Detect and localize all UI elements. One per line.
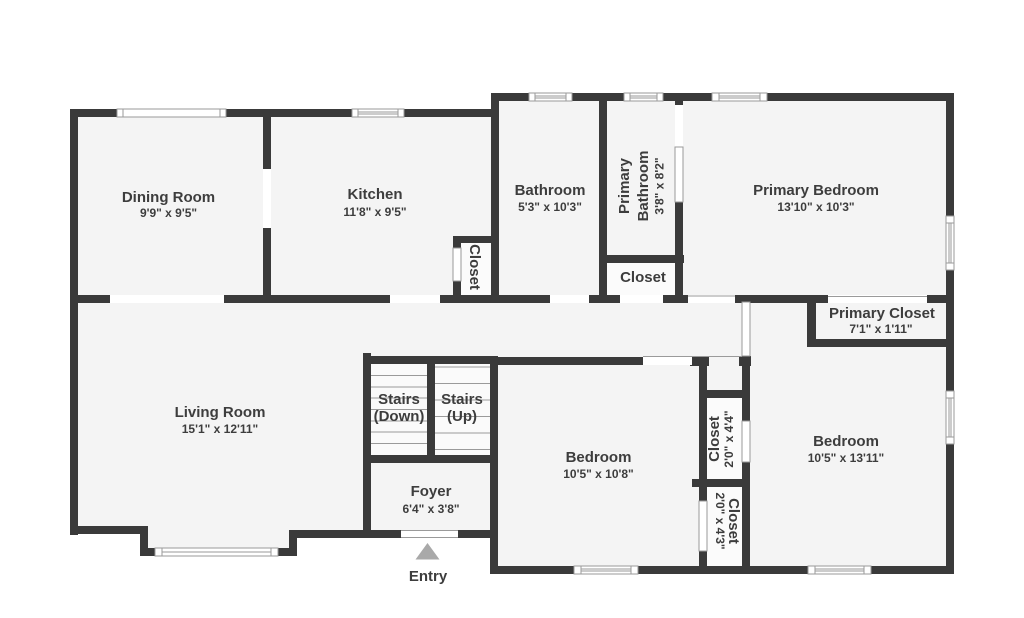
svg-text:6'4" x 3'8": 6'4" x 3'8" xyxy=(402,502,459,516)
svg-text:7'1" x 1'11": 7'1" x 1'11" xyxy=(849,322,912,336)
svg-text:Bedroom: Bedroom xyxy=(566,449,632,466)
svg-text:10'5" x 13'11": 10'5" x 13'11" xyxy=(808,451,884,465)
svg-text:5'3" x 10'3": 5'3" x 10'3" xyxy=(518,200,582,214)
svg-text:Dining Room: Dining Room xyxy=(122,189,215,206)
svg-text:Closet: Closet xyxy=(620,269,666,286)
svg-text:Closet: Closet xyxy=(706,416,723,462)
svg-text:(Down): (Down) xyxy=(374,408,425,425)
svg-text:Stairs: Stairs xyxy=(441,391,483,408)
svg-text:Closet: Closet xyxy=(466,244,483,290)
svg-text:Primary Closet: Primary Closet xyxy=(829,305,935,322)
svg-text:Bathroom: Bathroom xyxy=(635,151,652,222)
svg-text:Kitchen: Kitchen xyxy=(347,186,402,203)
svg-text:15'1" x 12'11": 15'1" x 12'11" xyxy=(182,422,258,436)
svg-text:Foyer: Foyer xyxy=(411,483,452,500)
svg-text:Living Room: Living Room xyxy=(175,404,266,421)
svg-text:Entry: Entry xyxy=(409,568,448,585)
svg-text:3'8" x 8'2": 3'8" x 8'2" xyxy=(653,157,667,214)
svg-text:Primary: Primary xyxy=(616,157,633,214)
svg-text:Bathroom: Bathroom xyxy=(515,182,586,199)
svg-text:Closet: Closet xyxy=(725,498,742,544)
svg-text:2'0" x 4'3": 2'0" x 4'3" xyxy=(713,492,727,549)
svg-text:2'0" x 4'4": 2'0" x 4'4" xyxy=(722,410,736,467)
svg-text:13'10" x 10'3": 13'10" x 10'3" xyxy=(777,200,854,214)
svg-text:(Up): (Up) xyxy=(447,408,477,425)
svg-text:11'8" x 9'5": 11'8" x 9'5" xyxy=(343,205,406,219)
svg-text:10'5" x 10'8": 10'5" x 10'8" xyxy=(563,467,633,481)
svg-text:Stairs: Stairs xyxy=(378,391,420,408)
svg-text:9'9" x 9'5": 9'9" x 9'5" xyxy=(140,206,197,220)
svg-text:Primary Bedroom: Primary Bedroom xyxy=(753,182,879,199)
svg-text:Bedroom: Bedroom xyxy=(813,433,879,450)
